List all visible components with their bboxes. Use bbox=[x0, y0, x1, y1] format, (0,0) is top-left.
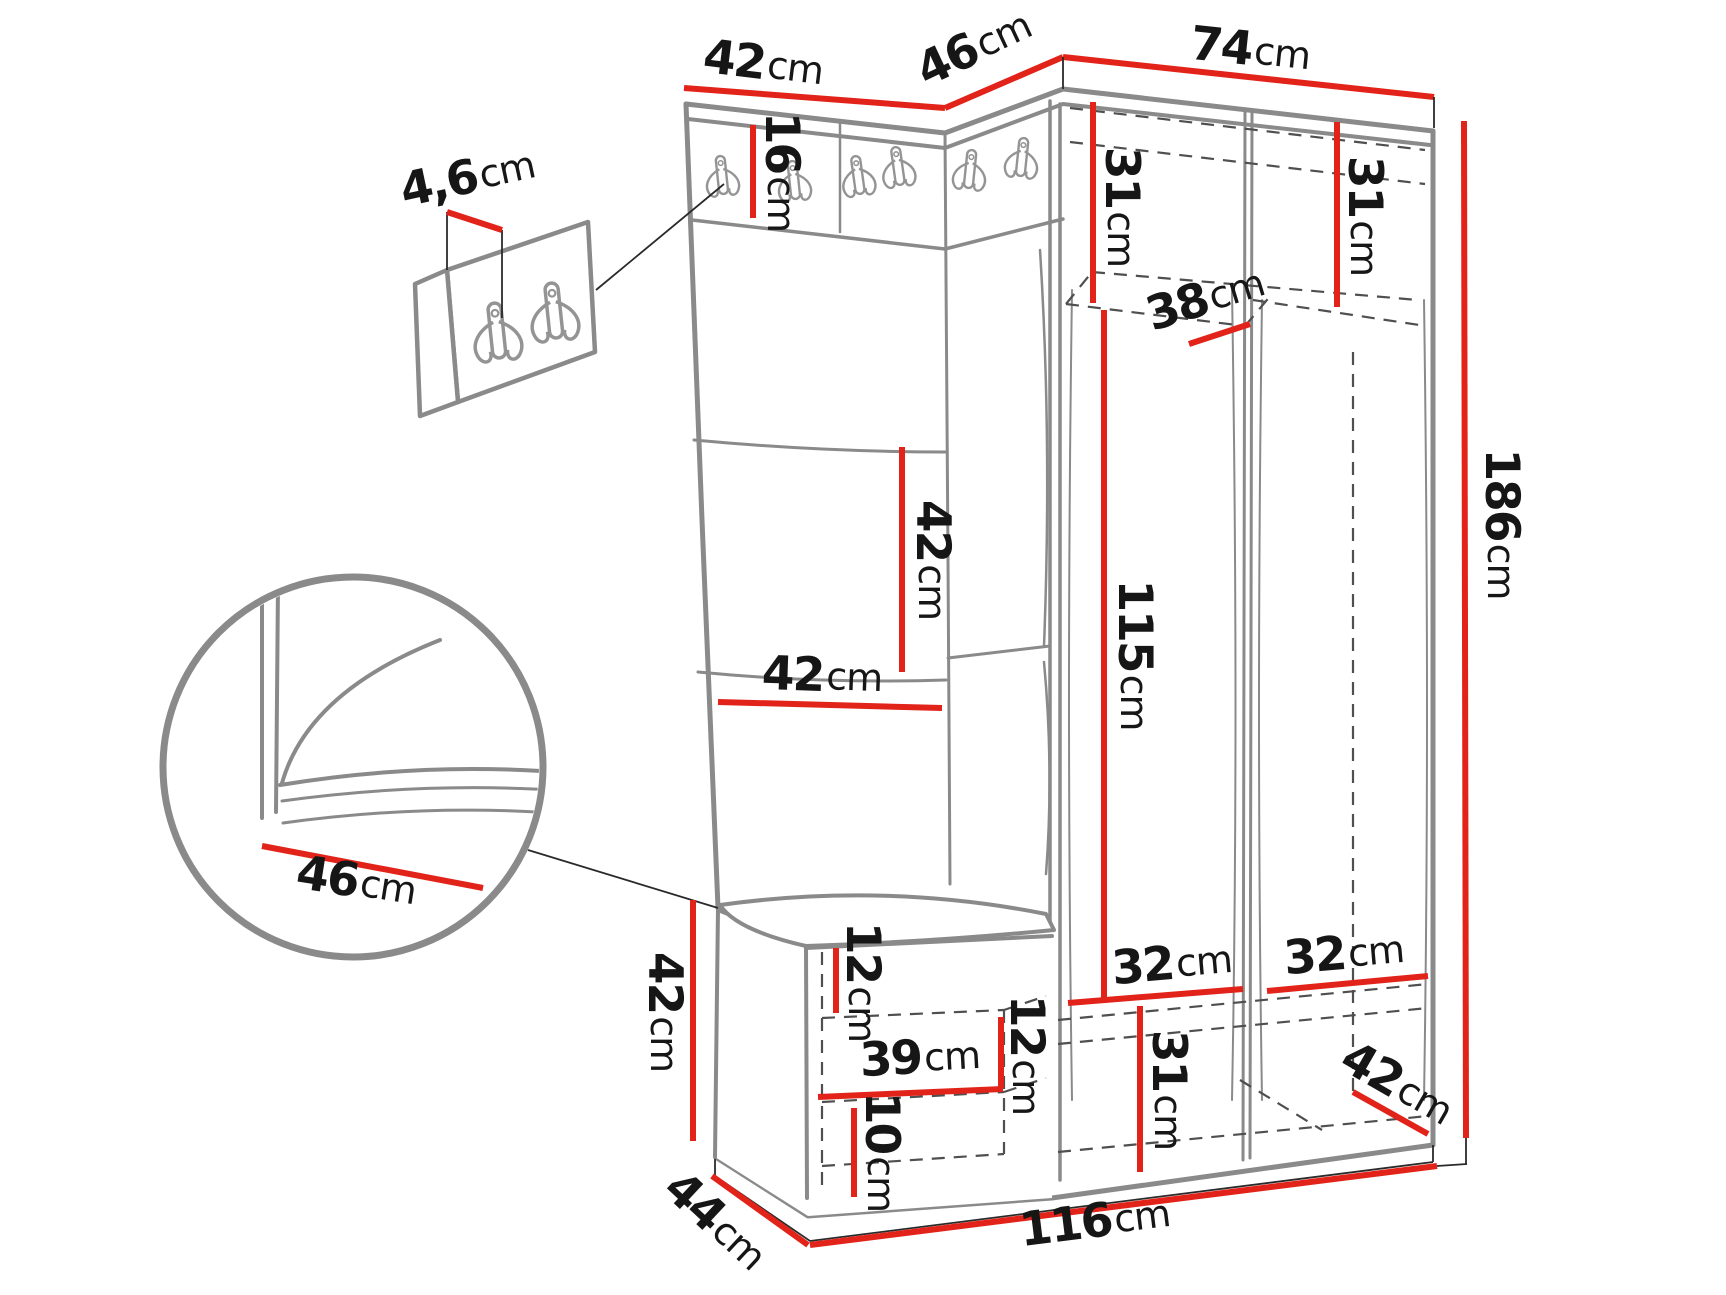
dim-label-top-shelf-right-height: 31cm bbox=[1338, 156, 1393, 276]
dim-label-bottom-shelf-left-width: 32cm bbox=[1109, 930, 1234, 995]
ext-bottom-right-2 bbox=[1437, 1164, 1467, 1166]
dim-label-panel-tile-height: 42cm bbox=[906, 500, 961, 620]
dim-line-total-height bbox=[1464, 121, 1466, 1138]
coat-hook-icon bbox=[1004, 136, 1040, 179]
top-back-edge-dashed bbox=[1070, 108, 1425, 150]
detail-leader-line bbox=[596, 184, 724, 290]
dim-label-top-width-corner: 46cm bbox=[908, 0, 1040, 98]
right-door-edge-right bbox=[1424, 300, 1427, 1100]
corner-tile-seam bbox=[948, 646, 1050, 658]
dim-line-panel-tile-width bbox=[718, 702, 942, 708]
diagram-canvas: 42cm 46cm 74cm 16cm 4,6cm 31cm 31cm 38cm… bbox=[0, 0, 1726, 1295]
circle-leader-line bbox=[528, 850, 718, 908]
bench-front-left-edge bbox=[806, 944, 807, 1198]
dim-label-bottom-shelf-height: 31cm bbox=[1142, 1030, 1197, 1150]
dim-label-bench-opening-right: 12cm bbox=[1000, 995, 1055, 1115]
furniture-dimension-diagram: 42cm 46cm 74cm 16cm 4,6cm 31cm 31cm 38cm… bbox=[0, 0, 1726, 1295]
dim-label-bench-height: 42cm bbox=[638, 952, 693, 1072]
dim-label-hook-rail-height: 16cm bbox=[755, 112, 810, 232]
right-door-edge bbox=[1259, 300, 1262, 1100]
dim-label-hook-panel-thickness: 4,6cm bbox=[395, 136, 540, 218]
dim-label-hanging-height: 115cm bbox=[1108, 579, 1163, 730]
corner-cushion-edge-1 bbox=[1040, 250, 1047, 646]
dim-label-depth-right: 42cm bbox=[1332, 1030, 1464, 1138]
dim-label-top-shelf-left-height: 31cm bbox=[1095, 147, 1150, 267]
bench-corner-detail bbox=[163, 577, 718, 957]
panel-left-edge bbox=[686, 104, 718, 908]
dim-label-total-height: 186cm bbox=[1475, 448, 1530, 599]
coat-hook-icon bbox=[839, 154, 876, 198]
shelf-depth-conn-1 bbox=[1066, 272, 1092, 304]
dim-label-bench-opening-bottom: 10cm bbox=[855, 1092, 910, 1212]
detail-panel-edge-2 bbox=[276, 583, 278, 812]
bottom-depth-dashed bbox=[1240, 1080, 1322, 1130]
left-door-edge bbox=[1069, 290, 1072, 1100]
dim-label-panel-tile-width: 42cm bbox=[761, 645, 883, 704]
hook-rail-seam bbox=[692, 219, 1063, 249]
dim-label-bench-opening-top: 12cm bbox=[836, 922, 891, 1042]
tile-seam-1 bbox=[694, 440, 945, 452]
coat-hook-icon bbox=[952, 148, 988, 191]
dim-label-bottom-shelf-right-width: 32cm bbox=[1281, 920, 1406, 985]
dim-line-hook-panel-thickness bbox=[447, 212, 502, 230]
coat-hook-icon bbox=[704, 154, 740, 197]
coat-hook-icon bbox=[879, 145, 916, 189]
dim-label-top-width-left: 42cm bbox=[700, 28, 826, 97]
